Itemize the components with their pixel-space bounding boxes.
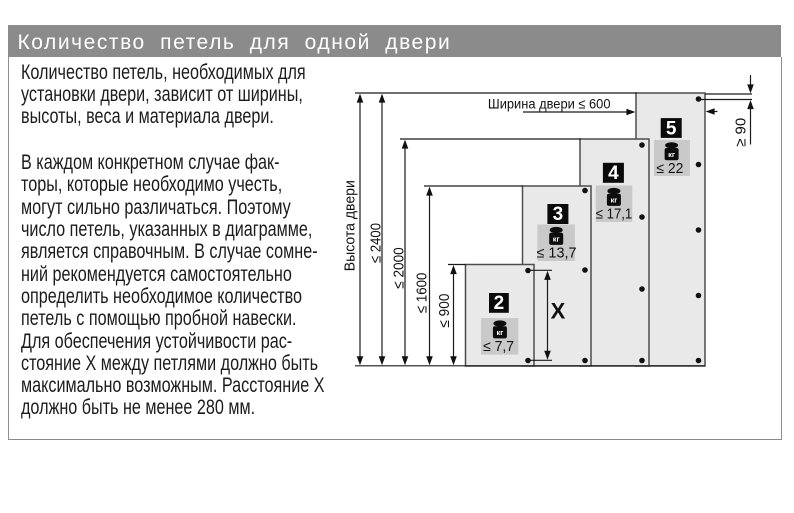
svg-text:≤ 900: ≤ 900 [436, 294, 453, 328]
svg-text:Высота двери: Высота двери [342, 180, 359, 271]
svg-text:4: 4 [608, 163, 619, 184]
svg-text:5: 5 [666, 118, 677, 139]
svg-text:≤ 2400: ≤ 2400 [367, 223, 384, 263]
svg-text:≤ 1600: ≤ 1600 [413, 273, 430, 314]
svg-text:Ширина двери ≤ 600: Ширина двери ≤ 600 [488, 96, 611, 112]
svg-text:≤ 2000: ≤ 2000 [390, 247, 407, 289]
svg-text:≤ 7,7: ≤ 7,7 [483, 339, 514, 355]
svg-text:X: X [551, 299, 566, 324]
svg-text:2: 2 [494, 293, 505, 314]
svg-text:≥ 90: ≥ 90 [733, 118, 750, 147]
svg-text:≤ 17,1: ≤ 17,1 [596, 207, 633, 223]
svg-text:≤ 13,7: ≤ 13,7 [537, 246, 577, 262]
svg-text:≤ 22: ≤ 22 [656, 161, 683, 177]
svg-text:3: 3 [553, 204, 564, 225]
